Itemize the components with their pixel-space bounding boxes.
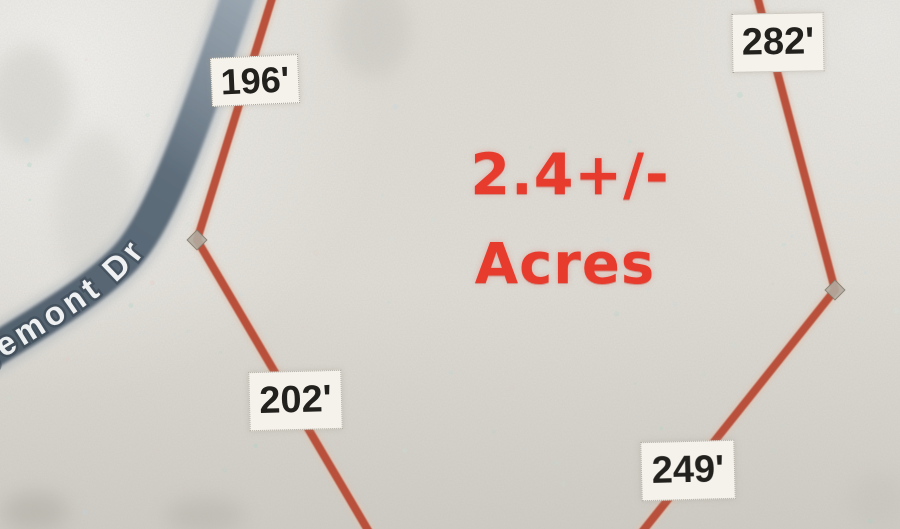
acreage-unit: Acres bbox=[440, 234, 690, 296]
plat-map: gemont Dr 196' 282' 202' 249' 2.4+/- bbox=[0, 0, 900, 529]
measurement-label-282: 282' bbox=[731, 12, 824, 73]
measurement-label-249: 249' bbox=[640, 440, 736, 501]
measurement-label-202: 202' bbox=[248, 370, 343, 431]
measurement-text: 282' bbox=[741, 20, 814, 64]
measurement-text: 249' bbox=[651, 448, 725, 493]
measurement-label-196: 196' bbox=[210, 54, 300, 107]
measurement-text: 202' bbox=[259, 378, 333, 423]
measurement-text: 196' bbox=[220, 58, 290, 103]
acreage-value: 2.4+/- bbox=[440, 144, 700, 207]
